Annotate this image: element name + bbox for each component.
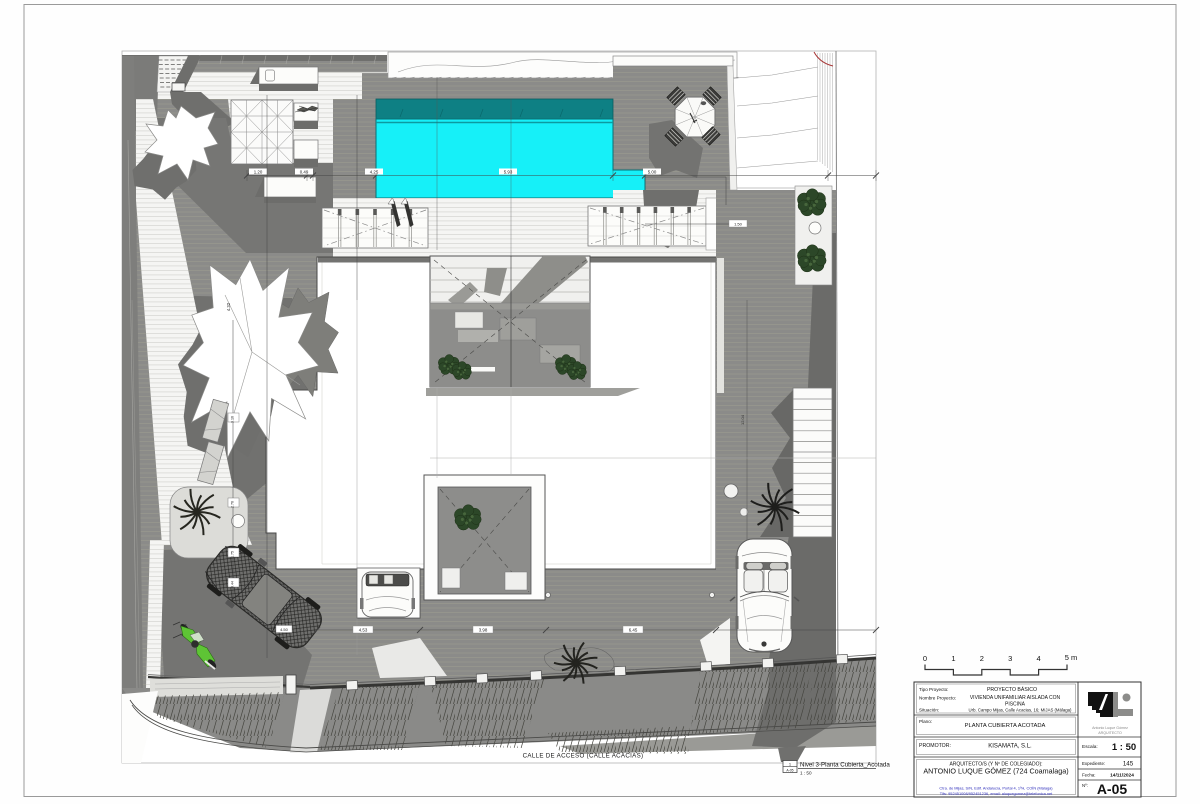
svg-text:1.75: 1.75 [231, 551, 235, 558]
svg-text:12.04: 12.04 [740, 414, 745, 425]
svg-text:Antonio Luque Gómez: Antonio Luque Gómez [1092, 726, 1128, 730]
svg-text:KISAMATA, S.L.: KISAMATA, S.L. [988, 744, 1032, 750]
svg-text:Escala:: Escala: [1082, 744, 1098, 750]
svg-text:0.49: 0.49 [300, 170, 309, 175]
svg-text:1: 1 [951, 654, 955, 663]
svg-text:1 : 50: 1 : 50 [1112, 742, 1136, 753]
svg-text:5 m: 5 m [1065, 653, 1078, 662]
svg-text:A-05: A-05 [1097, 781, 1128, 797]
svg-text:PROMOTOR:: PROMOTOR: [919, 743, 951, 749]
svg-text:3.16: 3.16 [231, 416, 235, 423]
svg-text:4.50: 4.50 [280, 627, 289, 632]
svg-text:14/11/2024: 14/11/2024 [1110, 773, 1134, 779]
svg-text:4.32: 4.32 [226, 302, 231, 311]
svg-text:Ctra. de Mijas, S/N, Edif. And: Ctra. de Mijas, S/N, Edif. Andalucía, Po… [939, 786, 1053, 791]
svg-text:2.76: 2.76 [231, 501, 235, 508]
svg-text:4.53: 4.53 [359, 628, 368, 633]
svg-text:PLANTA CUBIERTA ACOTADA: PLANTA CUBIERTA ACOTADA [965, 723, 1046, 729]
svg-text:5.00: 5.00 [648, 170, 657, 175]
svg-text:PROYECTO BÁSICO: PROYECTO BÁSICO [987, 686, 1037, 693]
svg-text:1.50: 1.50 [734, 222, 743, 227]
svg-text:3.98: 3.98 [479, 628, 488, 633]
svg-text:0: 0 [923, 654, 927, 663]
svg-text:Situación:: Situación: [919, 708, 939, 713]
svg-text:Fecha:: Fecha: [1082, 773, 1095, 778]
svg-text:ARQUITECTO: ARQUITECTO [1098, 731, 1122, 735]
svg-text:4.25: 4.25 [370, 170, 379, 175]
svg-text:Plano:: Plano: [919, 719, 932, 724]
svg-text:Tipo Proyecto:: Tipo Proyecto: [919, 687, 948, 692]
svg-text:1.20: 1.20 [254, 170, 263, 175]
svg-text:A-05: A-05 [786, 769, 793, 773]
svg-text:Urb. Campo Mijas, Calle Acacia: Urb. Campo Mijas, Calle Acacias, 16; MIJ… [969, 708, 1072, 713]
svg-text:2: 2 [980, 654, 984, 663]
svg-text:VIVIENDA UNIFAMILIAR AISLADA C: VIVIENDA UNIFAMILIAR AISLADA CON [970, 695, 1061, 701]
svg-text:1 : 50: 1 : 50 [800, 771, 812, 776]
svg-text:6.45: 6.45 [629, 628, 638, 633]
svg-text:5.93: 5.93 [504, 170, 513, 175]
svg-text:Expediente:: Expediente: [1082, 761, 1105, 766]
svg-text:3: 3 [1008, 654, 1012, 663]
svg-text:Nº:: Nº: [1082, 783, 1088, 788]
svg-text:Nivel 3-Planta Cubierta_Acotad: Nivel 3-Planta Cubierta_Acotada [800, 762, 890, 769]
svg-text:ANTONIO LUQUE GÓMEZ (724 Coama: ANTONIO LUQUE GÓMEZ (724 Coamalaga) [923, 767, 1068, 776]
svg-text:0.44: 0.44 [231, 581, 235, 588]
svg-text:Nombre Proyecto:: Nombre Proyecto: [919, 696, 956, 701]
svg-text:145: 145 [1123, 761, 1134, 768]
svg-text:Tlfs: 952451008/952451236, ema: Tlfs: 952451008/952451236, email: aluque… [940, 791, 1053, 796]
svg-text:CALLE DE ACCESO (CALLE ACACIAS: CALLE DE ACCESO (CALLE ACACIAS) [523, 753, 644, 760]
svg-text:4: 4 [1037, 654, 1041, 663]
